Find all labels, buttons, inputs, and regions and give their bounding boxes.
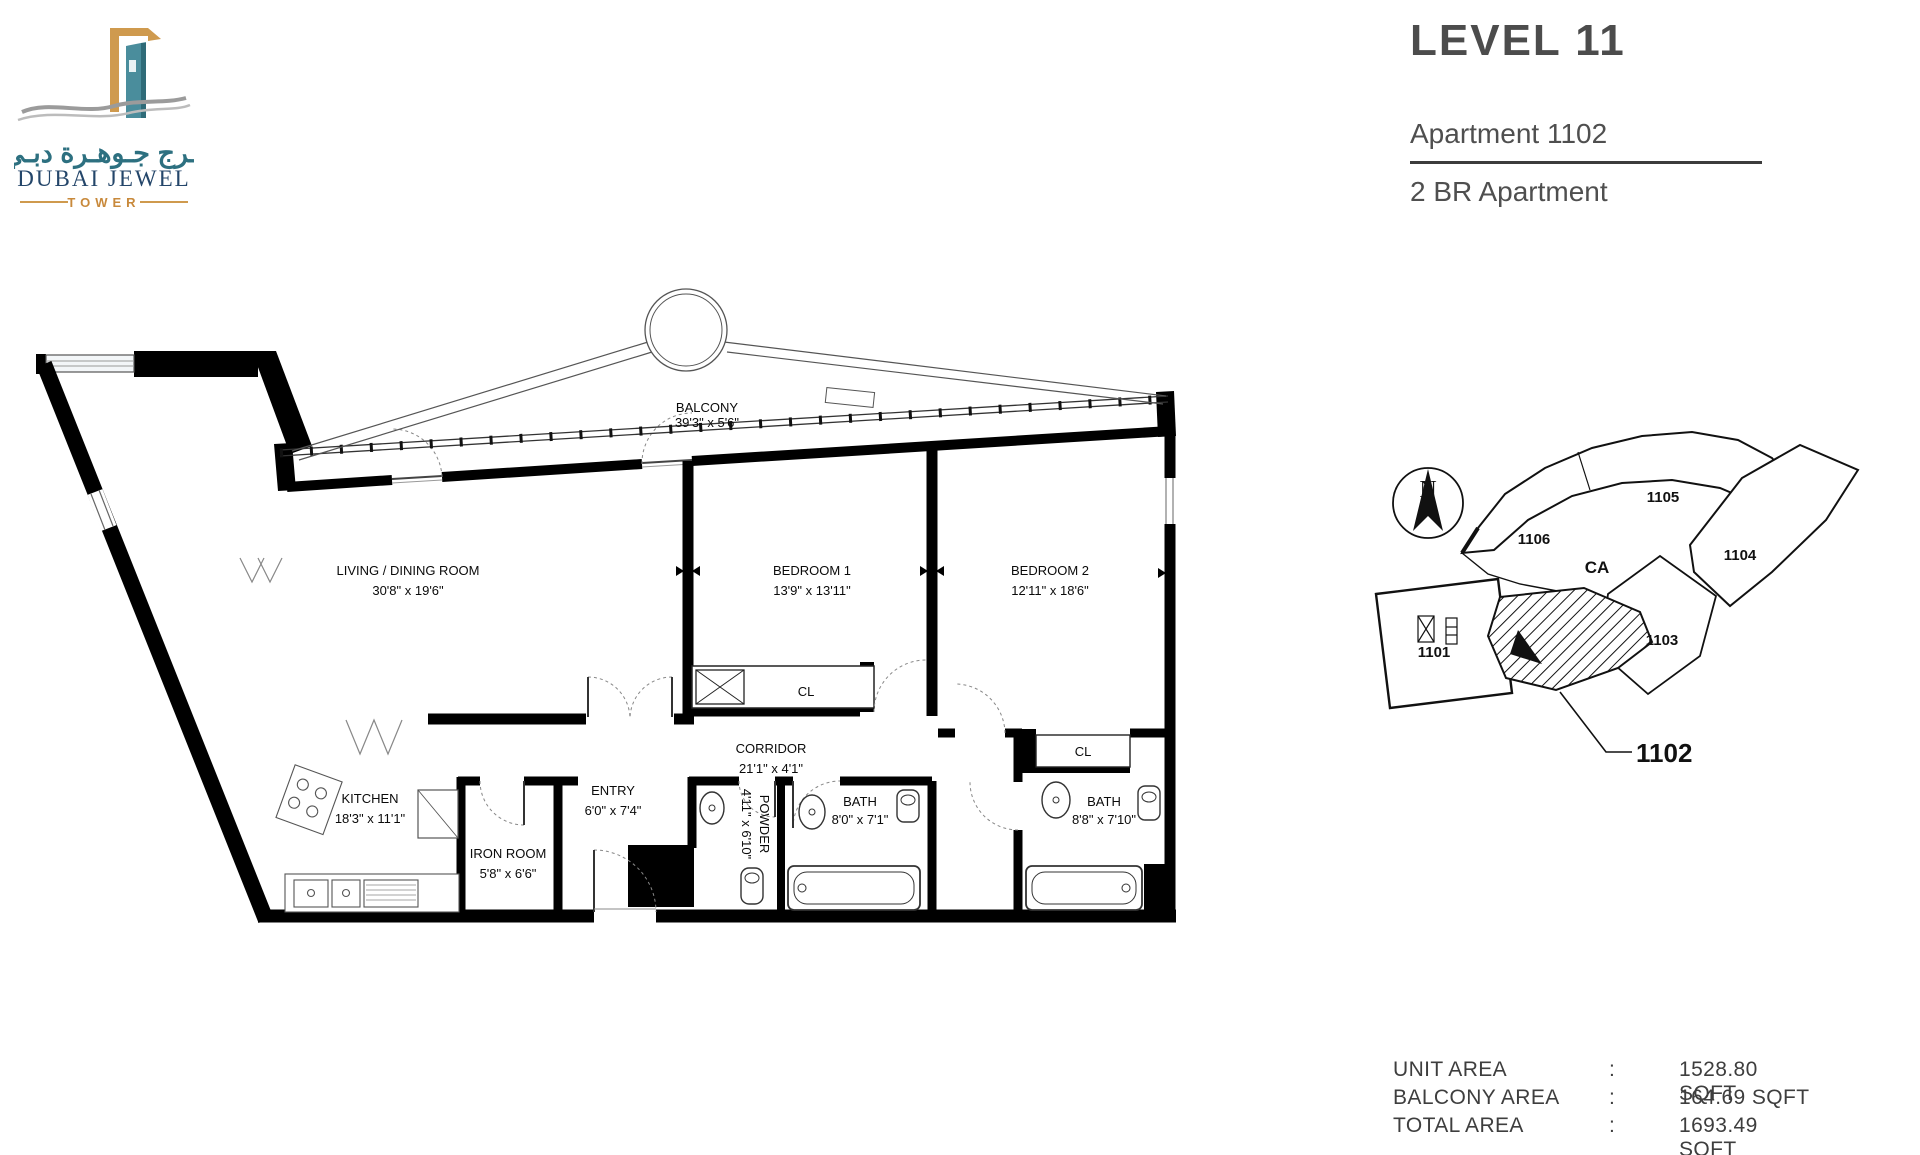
room-label-balcony: BALCONY <box>676 400 738 415</box>
room-dims-balcony: 39'3" x 5'6" <box>675 415 739 430</box>
balcony-wall <box>287 431 1170 487</box>
unit-area-value: 1528.80 SQFT <box>1679 1058 1813 1086</box>
room-label-iron-room: IRON ROOM <box>470 846 547 861</box>
total-area-separator: : <box>1609 1114 1679 1142</box>
kitchen-counter <box>285 874 459 912</box>
unit-1102-leader <box>1560 692 1632 752</box>
room-label-bath1: BATH <box>843 794 877 809</box>
room-label-entry: ENTRY <box>591 783 635 798</box>
total-area-label: TOTAL AREA <box>1393 1114 1609 1142</box>
balcony-area-row: BALCONY AREA : 164.69 SQFT <box>1393 1086 1813 1114</box>
room-label-closet2: CL <box>1075 744 1092 759</box>
keyplan-common-area: CA <box>1585 558 1610 577</box>
room-label-corridor: CORRIDOR <box>736 741 807 756</box>
window-top-left <box>46 355 134 372</box>
balcony-area-value: 164.69 SQFT <box>1679 1086 1813 1114</box>
keyplan-unit-1106: 1106 <box>1518 531 1551 548</box>
north-arrow-icon: N <box>1393 468 1463 538</box>
floorplan-page: بـرج جـوهـرة دبـي DUBAI JEWEL TOWER LEVE… <box>0 0 1920 1155</box>
room-label-kitchen: KITCHEN <box>341 791 398 806</box>
unit-area-separator: : <box>1609 1058 1679 1086</box>
room-dims-bedroom2: 12'11" x 18'6" <box>1011 583 1089 598</box>
total-area-row: TOTAL AREA : 1693.49 SQFT <box>1393 1114 1813 1142</box>
room-label-bath2: BATH <box>1087 794 1121 809</box>
room-dims-bedroom1: 13'9" x 13'11" <box>773 583 851 598</box>
kitchen-partition-zigzag <box>346 720 402 754</box>
room-label-bedroom2: BEDROOM 2 <box>1011 563 1089 578</box>
total-area-value: 1693.49 SQFT <box>1679 1114 1813 1142</box>
logo-tagline-text: TOWER <box>67 195 140 210</box>
unit-area-label: UNIT AREA <box>1393 1058 1609 1086</box>
room-label-closet1: CL <box>798 684 815 699</box>
room-dims-entry: 6'0" x 7'4" <box>585 803 642 818</box>
keyplan-unit-1103: 1103 <box>1646 632 1679 649</box>
area-statistics: UNIT AREA : 1528.80 SQFT BALCONY AREA : … <box>1393 1058 1813 1142</box>
closet-1 <box>692 666 874 708</box>
unit-area-row: UNIT AREA : 1528.80 SQFT <box>1393 1058 1813 1086</box>
keyplan-highlighted-unit-label: 1102 <box>1636 738 1692 768</box>
living-chevrons <box>240 558 282 582</box>
stove <box>276 765 342 835</box>
room-dims-corridor: 21'1" x 4'1" <box>739 761 803 776</box>
apartment-title: Apartment 1102 <box>1410 118 1762 164</box>
floor-plan: BALCONY 39'3" x 5'6" LIVING / DINING ROO… <box>0 225 1250 945</box>
room-label-living: LIVING / DINING ROOM <box>336 563 479 578</box>
roof-circle <box>645 289 727 371</box>
balcony-area-label: BALCONY AREA <box>1393 1086 1609 1114</box>
wall-markers <box>676 566 1166 578</box>
logo-name-text: DUBAI JEWEL <box>17 166 190 191</box>
keyplan-unit-1104: 1104 <box>1724 547 1757 564</box>
keyplan-unit-1101: 1101 <box>1418 644 1451 661</box>
room-dims-bath2: 8'8" x 7'10" <box>1072 812 1136 827</box>
room-label-powder: POWDER <box>757 795 772 854</box>
wave-icon <box>18 98 190 120</box>
room-label-bedroom1: BEDROOM 1 <box>773 563 851 578</box>
dubai-jewel-logo: بـرج جـوهـرة دبـي DUBAI JEWEL TOWER <box>14 14 194 214</box>
room-dims-bath1: 8'0" x 7'1" <box>832 812 889 827</box>
fridge <box>418 790 458 838</box>
west-wall <box>44 364 266 920</box>
balcony-area-separator: : <box>1609 1086 1679 1114</box>
page-title: LEVEL 11 <box>1410 16 1626 66</box>
key-plan: N 1101 1103 1104 <box>1356 365 1876 775</box>
keyplan-unit-1105: 1105 <box>1647 489 1680 506</box>
room-dims-iron-room: 5'8" x 6'6" <box>480 866 537 881</box>
roof-vent <box>825 388 874 408</box>
room-dims-living: 30'8" x 19'6" <box>372 583 444 598</box>
room-dims-kitchen: 18'3" x 11'1" <box>335 811 406 826</box>
apartment-type: 2 BR Apartment <box>1410 176 1608 208</box>
room-dims-powder: 4'11" x 6'10" <box>739 789 754 860</box>
